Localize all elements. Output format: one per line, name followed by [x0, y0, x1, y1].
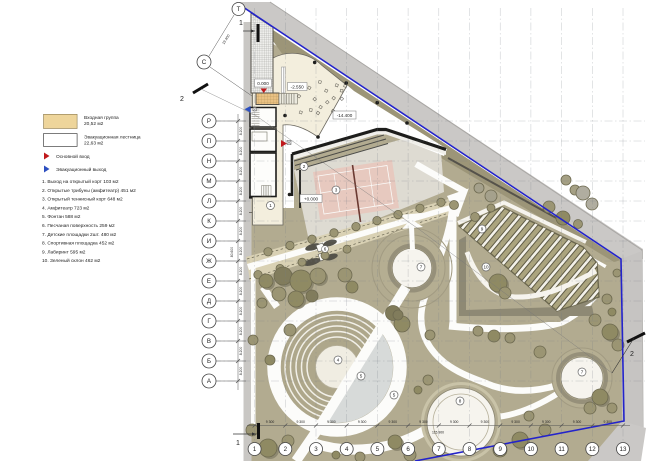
svg-text:13: 13 — [620, 446, 627, 453]
svg-text:8.200: 8.200 — [239, 127, 243, 136]
svg-text:1: 1 — [269, 203, 272, 208]
svg-text:Эвакуационная лестница: Эвакуационная лестница — [84, 134, 141, 140]
svg-text:+0.000: +0.000 — [304, 197, 319, 202]
svg-text:2: 2 — [180, 96, 184, 103]
svg-text:2. Открытые трибуны (амфитеатр: 2. Открытые трибуны (амфитеатр) 451 м2 — [42, 188, 136, 194]
svg-text:8.200: 8.200 — [239, 147, 243, 156]
svg-text:Ж: Ж — [206, 258, 212, 265]
svg-text:И: И — [207, 238, 211, 245]
svg-text:10: 10 — [483, 265, 489, 270]
svg-text:Эвакуационный выход: Эвакуационный выход — [56, 166, 107, 173]
svg-text:20,52 м2: 20,52 м2 — [84, 121, 104, 127]
svg-text:2: 2 — [303, 164, 306, 169]
svg-text:9 300: 9 300 — [603, 420, 612, 424]
svg-text:-2.550: -2.550 — [291, 85, 304, 90]
svg-text:9: 9 — [498, 446, 502, 453]
svg-text:8.200: 8.200 — [239, 347, 243, 356]
svg-text:9 300: 9 300 — [358, 420, 367, 424]
svg-text:6. Песчаная поверхность 259 м: 6. Песчаная поверхность 259 м2 — [42, 223, 115, 229]
svg-text:3. Открытый теннисный корт 648: 3. Открытый теннисный корт 648 м2 — [42, 196, 123, 203]
svg-text:К: К — [207, 218, 211, 225]
svg-text:115.900: 115.900 — [432, 431, 444, 435]
svg-text:4: 4 — [345, 446, 349, 453]
svg-text:П: П — [207, 138, 211, 145]
svg-text:9. Лабиринт 595 м2: 9. Лабиринт 595 м2 — [42, 249, 86, 255]
svg-text:С: С — [202, 59, 207, 66]
svg-text:2: 2 — [284, 446, 288, 453]
svg-text:7: 7 — [420, 265, 423, 270]
svg-text:12: 12 — [589, 446, 596, 453]
svg-text:8.200: 8.200 — [239, 307, 243, 316]
svg-text:8.200: 8.200 — [239, 367, 243, 376]
svg-text:0.000: 0.000 — [257, 81, 269, 86]
svg-text:Е: Е — [207, 278, 211, 285]
svg-text:10. Зеленый склон 462 м2: 10. Зеленый склон 462 м2 — [42, 257, 101, 264]
svg-text:8: 8 — [459, 399, 462, 404]
svg-text:2: 2 — [630, 351, 634, 358]
svg-text:22,63 м2: 22,63 м2 — [84, 140, 104, 146]
svg-text:7: 7 — [581, 370, 584, 375]
svg-text:8.200: 8.200 — [239, 327, 243, 336]
svg-text:1: 1 — [239, 20, 243, 27]
svg-text:9 300: 9 300 — [296, 420, 305, 424]
svg-text:-14.400: -14.400 — [337, 113, 353, 118]
svg-text:7: 7 — [437, 446, 441, 453]
svg-text:1: 1 — [253, 446, 257, 453]
svg-text:9 300: 9 300 — [573, 420, 582, 424]
svg-text:3: 3 — [314, 446, 318, 453]
svg-text:4: 4 — [337, 358, 340, 363]
svg-text:8.200: 8.200 — [239, 207, 243, 216]
svg-text:9 300: 9 300 — [419, 420, 428, 424]
svg-text:9 300: 9 300 — [511, 420, 520, 424]
svg-text:3: 3 — [335, 188, 338, 193]
svg-text:9: 9 — [481, 227, 484, 232]
svg-text:80.600: 80.600 — [230, 247, 234, 257]
svg-text:9 300: 9 300 — [389, 420, 398, 424]
svg-text:6: 6 — [406, 446, 410, 453]
svg-text:М: М — [206, 178, 211, 185]
svg-text:8.200: 8.200 — [239, 167, 243, 176]
svg-text:6: 6 — [324, 247, 327, 252]
svg-text:8.200: 8.200 — [239, 287, 243, 296]
svg-text:9 300: 9 300 — [327, 420, 336, 424]
svg-text:9 300: 9 300 — [450, 420, 459, 424]
svg-text:9 300: 9 300 — [481, 420, 490, 424]
svg-text:5: 5 — [393, 393, 396, 398]
svg-text:9 300: 9 300 — [542, 420, 551, 424]
svg-text:9 300: 9 300 — [266, 420, 275, 424]
svg-text:8.200: 8.200 — [239, 247, 243, 256]
svg-text:5. Фонтан 588 м2: 5. Фонтан 588 м2 — [42, 214, 81, 220]
svg-text:8.200: 8.200 — [239, 227, 243, 236]
svg-text:8. Спортивная площадка 452 м2: 8. Спортивная площадка 452 м2 — [42, 241, 115, 247]
svg-text:Т: Т — [237, 6, 241, 13]
svg-text:Р: Р — [207, 118, 211, 125]
svg-text:7. Детские площадки 2шт. 480: 7. Детские площадки 2шт. 480 м2 — [42, 232, 117, 238]
svg-text:Входная группа: Входная группа — [84, 115, 119, 121]
svg-text:В: В — [207, 338, 211, 345]
svg-text:Н: Н — [207, 158, 211, 165]
svg-text:1. Выход на открытый корт 103: 1. Выход на открытый корт 103 м2 — [42, 178, 119, 185]
svg-text:Б: Б — [207, 358, 211, 365]
svg-text:1: 1 — [236, 440, 240, 447]
svg-text:8.200: 8.200 — [239, 267, 243, 276]
svg-text:5: 5 — [360, 374, 363, 379]
svg-text:8: 8 — [468, 446, 472, 453]
svg-text:4. Амфитеатр 723 м2: 4. Амфитеатр 723 м2 — [42, 205, 90, 211]
svg-text:Основной вход: Основной вход — [56, 153, 90, 160]
svg-text:5: 5 — [376, 446, 380, 453]
svg-text:10: 10 — [527, 446, 534, 453]
svg-text:Л: Л — [207, 198, 211, 205]
svg-text:11: 11 — [558, 446, 565, 453]
svg-text:8.200: 8.200 — [239, 187, 243, 196]
